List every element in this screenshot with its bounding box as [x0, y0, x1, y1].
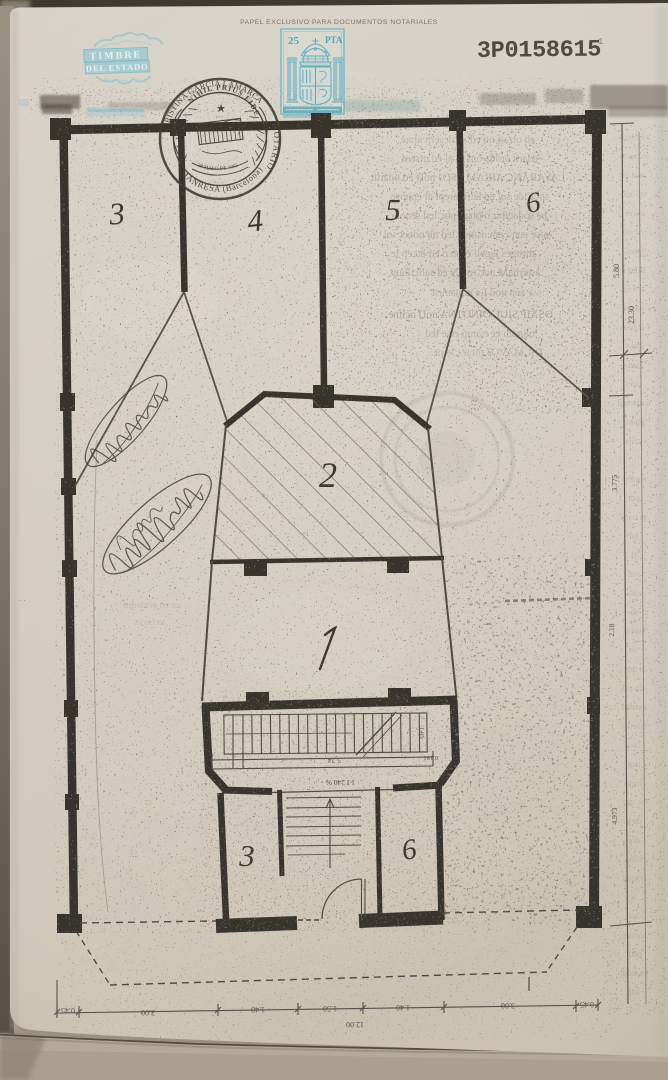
- svg-text:25: 25: [288, 35, 300, 47]
- svg-text:..: ..: [18, 596, 26, 604]
- svg-text:PTA: PTA: [325, 35, 343, 45]
- svg-text:3P0158615: 3P0158615: [477, 36, 602, 65]
- svg-text:1: 1: [598, 37, 603, 47]
- svg-text:PAPEL EXCLUSIVO PARA DOCUMENTO: PAPEL EXCLUSIVO PARA DOCUMENTOS NOTARIAL…: [240, 19, 438, 26]
- svg-text:TIMBRE: TIMBRE: [89, 50, 142, 63]
